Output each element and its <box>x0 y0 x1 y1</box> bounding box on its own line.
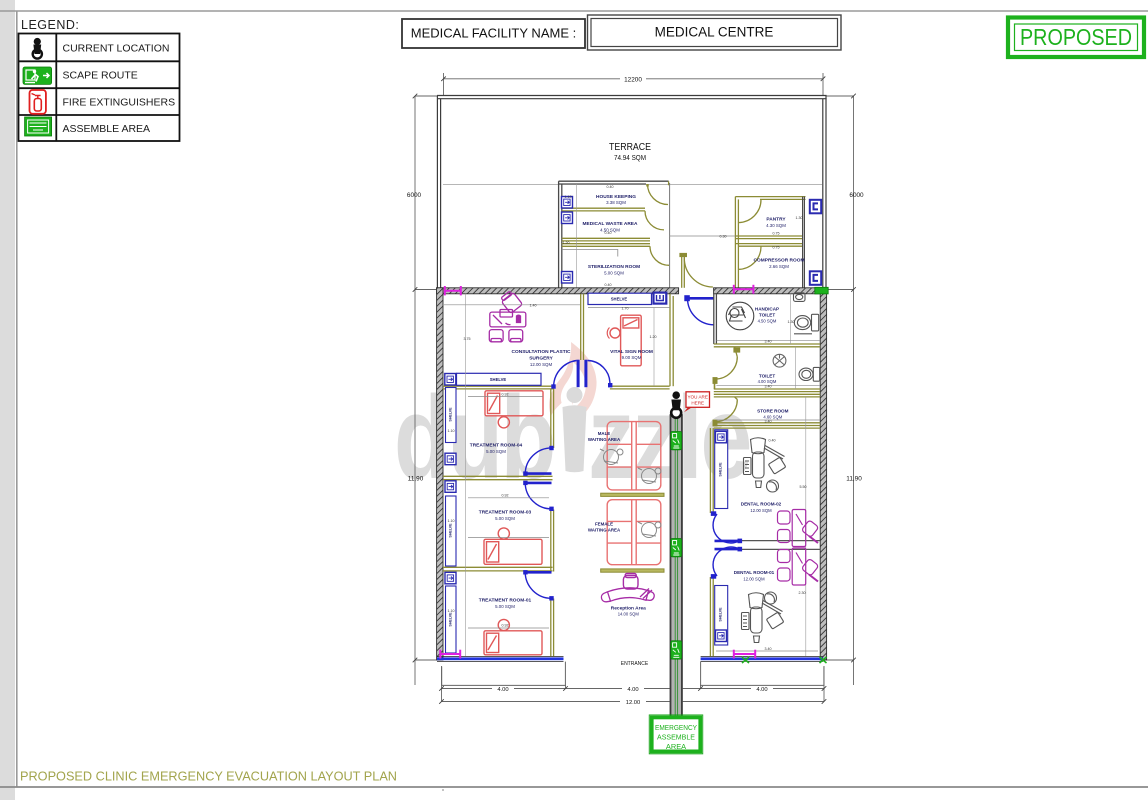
svg-text:TREATMENT ROOM-03: TREATMENT ROOM-03 <box>479 510 532 516</box>
svg-text:TOILET: TOILET <box>759 374 775 379</box>
svg-text:5.50: 5.50 <box>800 485 807 489</box>
svg-text:1.30: 1.30 <box>788 320 795 324</box>
svg-text:0.92: 0.92 <box>502 624 509 628</box>
svg-text:CONSULTATION PLASTIC: CONSULTATION PLASTIC <box>512 349 571 355</box>
svg-text:4.00: 4.00 <box>497 687 508 693</box>
svg-text:PANTRY: PANTRY <box>766 217 786 223</box>
svg-text:TERRACE: TERRACE <box>609 141 651 153</box>
svg-text:4.00: 4.00 <box>627 687 638 693</box>
svg-text:SHELVE: SHELVE <box>449 523 453 538</box>
svg-text:1.40: 1.40 <box>530 304 537 308</box>
svg-text:MEDICAL FACILITY NAME :: MEDICAL FACILITY NAME : <box>411 26 576 41</box>
svg-text:0.40: 0.40 <box>605 283 612 287</box>
svg-text:0.75: 0.75 <box>773 232 780 236</box>
svg-text:SHELVE: SHELVE <box>719 607 723 622</box>
svg-text:HERE: HERE <box>691 401 704 406</box>
svg-text:MALE: MALE <box>598 431 611 436</box>
svg-text:PROPOSED: PROPOSED <box>1020 24 1132 50</box>
svg-text:3.40: 3.40 <box>765 385 772 389</box>
svg-text:4.00 SQM: 4.00 SQM <box>758 379 777 384</box>
svg-text:1.10: 1.10 <box>448 519 455 523</box>
svg-text:3.38 SQM: 3.38 SQM <box>606 200 626 205</box>
svg-text:0.75: 0.75 <box>773 246 780 250</box>
svg-text:9.00 SQM: 9.00 SQM <box>622 355 642 360</box>
svg-text:1.10: 1.10 <box>448 609 455 613</box>
svg-text:SURGERY: SURGERY <box>529 356 553 362</box>
svg-text:AREA: AREA <box>666 742 686 751</box>
svg-text:12200: 12200 <box>624 76 642 83</box>
svg-text:1.20: 1.20 <box>563 241 570 245</box>
svg-text:2.30: 2.30 <box>799 591 806 595</box>
svg-text:3.40: 3.40 <box>765 340 772 344</box>
svg-text:DENTAL ROOM-02: DENTAL ROOM-02 <box>741 502 782 507</box>
svg-text:SHELVE: SHELVE <box>449 612 453 627</box>
svg-text:12.00 SQM: 12.00 SQM <box>530 362 553 367</box>
svg-text:11,90: 11,90 <box>846 476 862 483</box>
svg-text:0.30: 0.30 <box>720 235 727 239</box>
svg-text:WAITING AREA: WAITING AREA <box>588 437 621 442</box>
svg-text:ASSEMBLE: ASSEMBLE <box>657 733 695 742</box>
svg-text:FEMALE: FEMALE <box>595 522 613 527</box>
svg-text:dub: dub <box>394 372 554 504</box>
svg-text:4.00: 4.00 <box>756 687 767 693</box>
svg-text:5.00 SQM: 5.00 SQM <box>486 449 506 454</box>
svg-text:MEDICAL WASTE AREA: MEDICAL WASTE AREA <box>583 221 638 227</box>
svg-text:74.94 SQM: 74.94 SQM <box>614 155 646 162</box>
svg-text:EMERGENCY: EMERGENCY <box>655 723 697 732</box>
svg-text:TREATMENT ROOM-04: TREATMENT ROOM-04 <box>470 443 523 449</box>
svg-text:FIRE EXTINGUISHERS: FIRE EXTINGUISHERS <box>63 97 176 109</box>
svg-text:1.30: 1.30 <box>796 216 803 220</box>
svg-text:3.40: 3.40 <box>765 647 772 651</box>
svg-text:0.92: 0.92 <box>502 494 509 498</box>
svg-text:ASSEMBLE AREA: ASSEMBLE AREA <box>63 123 151 135</box>
svg-text:SHELVE: SHELVE <box>611 297 628 302</box>
svg-text:MEDICAL CENTRE: MEDICAL CENTRE <box>655 25 774 40</box>
svg-text:5.00 SQM: 5.00 SQM <box>604 271 624 276</box>
svg-text:YOU ARE: YOU ARE <box>687 394 707 399</box>
svg-text:3.75: 3.75 <box>464 337 471 341</box>
svg-text:ENTRANCE: ENTRANCE <box>621 661 649 667</box>
svg-text:1.10: 1.10 <box>565 195 572 199</box>
svg-text:12.00: 12.00 <box>626 700 641 706</box>
svg-text:5.00 SQM: 5.00 SQM <box>495 604 515 609</box>
svg-text:3.40: 3.40 <box>765 420 772 424</box>
svg-text:WAITING AREA: WAITING AREA <box>588 528 621 533</box>
svg-text:SCAPE ROUTE: SCAPE ROUTE <box>63 70 138 82</box>
svg-text:1.10: 1.10 <box>448 429 455 433</box>
svg-text:SHELVE: SHELVE <box>490 377 507 382</box>
svg-text:11,90: 11,90 <box>408 476 424 483</box>
svg-text:TREATMENT ROOM-01: TREATMENT ROOM-01 <box>479 598 532 604</box>
svg-text:0.92: 0.92 <box>502 393 509 397</box>
svg-text:LEGEND:: LEGEND: <box>21 18 79 32</box>
svg-text:12.00 SQM: 12.00 SQM <box>743 577 765 582</box>
svg-text:DENTAL ROOM-01: DENTAL ROOM-01 <box>734 570 775 575</box>
svg-text:HANDICAP: HANDICAP <box>755 307 779 312</box>
svg-text:PROPOSED CLINIC EMERGENCY EVAC: PROPOSED CLINIC EMERGENCY EVACUATION LAY… <box>20 769 397 784</box>
svg-text:1.70: 1.70 <box>622 307 629 311</box>
svg-text:14.00 SQM: 14.00 SQM <box>618 612 640 617</box>
svg-text:0.40: 0.40 <box>769 439 776 443</box>
svg-text:COMPRESSOR ROOM: COMPRESSOR ROOM <box>754 258 805 264</box>
svg-text:6000: 6000 <box>849 192 864 199</box>
svg-text:2.66 SQM: 2.66 SQM <box>769 264 789 269</box>
svg-text:STERILIZATION ROOM: STERILIZATION ROOM <box>588 264 640 270</box>
svg-text:4.30 SQM: 4.30 SQM <box>766 223 786 228</box>
svg-text:CURRENT LOCATION: CURRENT LOCATION <box>63 43 170 55</box>
svg-text:SHELVE: SHELVE <box>719 462 723 477</box>
svg-text:STORE ROOM: STORE ROOM <box>757 409 788 414</box>
svg-text:6000: 6000 <box>407 192 422 199</box>
svg-text:5.00 SQM: 5.00 SQM <box>495 516 515 521</box>
svg-text:4.50 SQM: 4.50 SQM <box>758 319 777 324</box>
svg-text:1.20: 1.20 <box>650 335 657 339</box>
svg-text:SHELVE: SHELVE <box>449 407 453 422</box>
svg-text:0.40: 0.40 <box>605 231 612 235</box>
svg-text:TOILET: TOILET <box>759 313 775 318</box>
svg-text:0.40: 0.40 <box>607 185 614 189</box>
svg-text:12.00 SQM: 12.00 SQM <box>750 508 772 513</box>
